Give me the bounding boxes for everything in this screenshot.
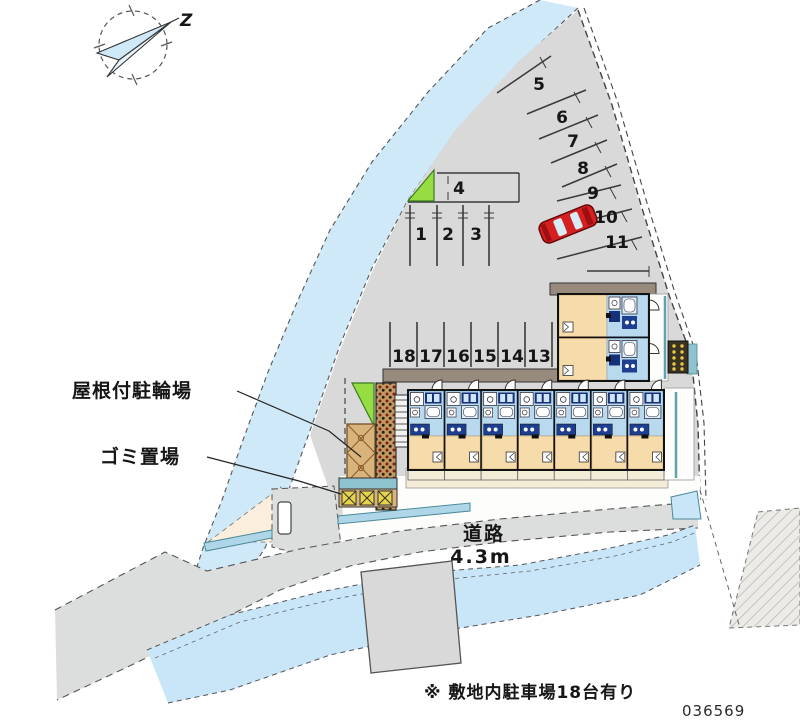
apartment-unit [558, 338, 659, 382]
apartment-unit [481, 380, 518, 480]
stall-number-7: 7 [567, 132, 579, 152]
stall-number-2: 2 [442, 225, 454, 245]
plan-id: 036569 [682, 702, 745, 720]
stall-number-15: 15 [473, 347, 497, 367]
label-covered-bicycle-parking: 屋根付駐輪場 [72, 379, 192, 402]
apartment-unit [627, 380, 664, 480]
stall-number-9: 9 [587, 184, 599, 204]
stall-number-10: 10 [594, 208, 618, 228]
apartment-unit [591, 380, 628, 480]
site-note: ※ 敷地内駐車場18台有り [424, 682, 636, 703]
stall-number-13: 13 [527, 347, 551, 367]
lot-divider-line [700, 490, 740, 628]
stall-number-5: 5 [533, 75, 545, 95]
walkway-roof-north [383, 369, 583, 382]
stall-number-14: 14 [500, 347, 524, 367]
stall-number-1: 1 [415, 225, 427, 245]
north-label: Z [179, 11, 193, 31]
stall-number-17: 17 [419, 347, 443, 367]
exterior-stairs-west [395, 395, 409, 447]
bike-rack-south [339, 478, 397, 507]
apartment-unit [518, 380, 555, 480]
building-main-row [406, 380, 694, 488]
east-walkway [664, 388, 694, 480]
apartment-unit [408, 380, 445, 480]
site-plan-drawing: 1 2 3 4 5 6 7 8 9 10 11 12 13 14 15 16 1… [0, 0, 800, 727]
north-arrow: Z [94, 5, 193, 85]
label-road-width: 4.3m [450, 546, 511, 568]
apartment-unit [558, 294, 659, 338]
label-garbage-area: ゴミ置場 [100, 445, 180, 468]
building-upper-wing [558, 294, 668, 381]
stall-number-4: 4 [453, 179, 465, 199]
stall-number-16: 16 [446, 347, 470, 367]
culvert-railing [278, 502, 291, 534]
bridge [361, 561, 461, 673]
apartment-unit [445, 380, 482, 480]
stall-number-6: 6 [556, 108, 568, 128]
stall-number-3: 3 [470, 225, 482, 245]
garbage-box [347, 424, 375, 482]
stall-number-11: 11 [605, 233, 629, 253]
stall-number-18: 18 [392, 347, 416, 367]
label-road: 道路 [463, 522, 505, 545]
adjacent-lot-hatched [729, 508, 800, 628]
exterior-stairs-east [668, 341, 697, 374]
stall-number-8: 8 [577, 159, 589, 179]
site-plan-page: 1 2 3 4 5 6 7 8 9 10 11 12 13 14 15 16 1… [0, 0, 800, 727]
apartment-unit [554, 380, 591, 480]
